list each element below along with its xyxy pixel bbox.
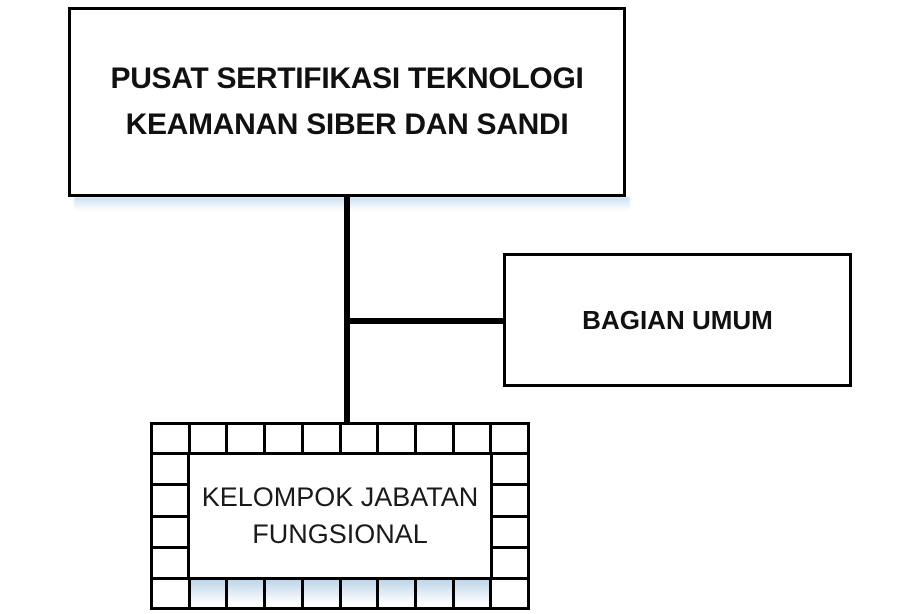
node-kelompok-label-line2: FUNGSIONAL — [252, 516, 428, 553]
frame-cell — [342, 425, 377, 452]
frame-cell — [153, 455, 187, 483]
node-pusat-label-line2: KEAMANAN SIBER DAN SANDI — [126, 102, 569, 148]
node-bagian-umum: BAGIAN UMUM — [503, 253, 852, 387]
frame-cell — [304, 580, 339, 607]
frame-cell — [493, 486, 527, 514]
connector-vertical-line — [344, 197, 350, 422]
frame-cell — [153, 486, 187, 514]
frame-cell — [379, 580, 414, 607]
node-kelompok-jabatan-fungsional: KELOMPOK JABATAN FUNGSIONAL — [190, 455, 490, 577]
frame-middle: KELOMPOK JABATAN FUNGSIONAL — [153, 455, 527, 577]
frame-cell — [379, 425, 414, 452]
frame-cell — [153, 549, 187, 577]
frame-cell — [492, 580, 527, 607]
frame-cell — [493, 455, 527, 483]
org-chart-diagram: PUSAT SERTIFIKASI TEKNOLOGI KEAMANAN SIB… — [0, 0, 912, 614]
frame-cell — [455, 580, 490, 607]
frame-cell — [191, 425, 226, 452]
frame-cell — [153, 425, 188, 452]
root-box-shadow — [74, 197, 630, 211]
node-kelompok-label-line1: KELOMPOK JABATAN — [202, 479, 479, 516]
frame-left-column — [153, 455, 187, 577]
frame-cell — [266, 580, 301, 607]
frame-cell — [417, 580, 452, 607]
frame-bottom-row — [153, 580, 527, 607]
node-pusat-sertifikasi: PUSAT SERTIFIKASI TEKNOLOGI KEAMANAN SIB… — [68, 7, 626, 197]
frame-top-row — [153, 425, 527, 452]
frame-cell — [228, 425, 263, 452]
frame-cell — [266, 425, 301, 452]
frame-cell — [492, 425, 527, 452]
frame-cell — [304, 425, 339, 452]
frame-cell — [191, 580, 226, 607]
frame-cell — [342, 580, 377, 607]
frame-cell — [153, 518, 187, 546]
frame-cell — [153, 580, 188, 607]
node-pusat-label-line1: PUSAT SERTIFIKASI TEKNOLOGI — [110, 56, 583, 102]
frame-cell — [493, 518, 527, 546]
frame-cell — [228, 580, 263, 607]
connector-horizontal-line — [344, 318, 503, 324]
frame-cell — [417, 425, 452, 452]
frame-right-column — [493, 455, 527, 577]
frame-cell — [455, 425, 490, 452]
node-bagian-umum-label: BAGIAN UMUM — [582, 304, 773, 336]
frame-cell — [493, 549, 527, 577]
node-kelompok-frame: KELOMPOK JABATAN FUNGSIONAL — [150, 422, 530, 610]
